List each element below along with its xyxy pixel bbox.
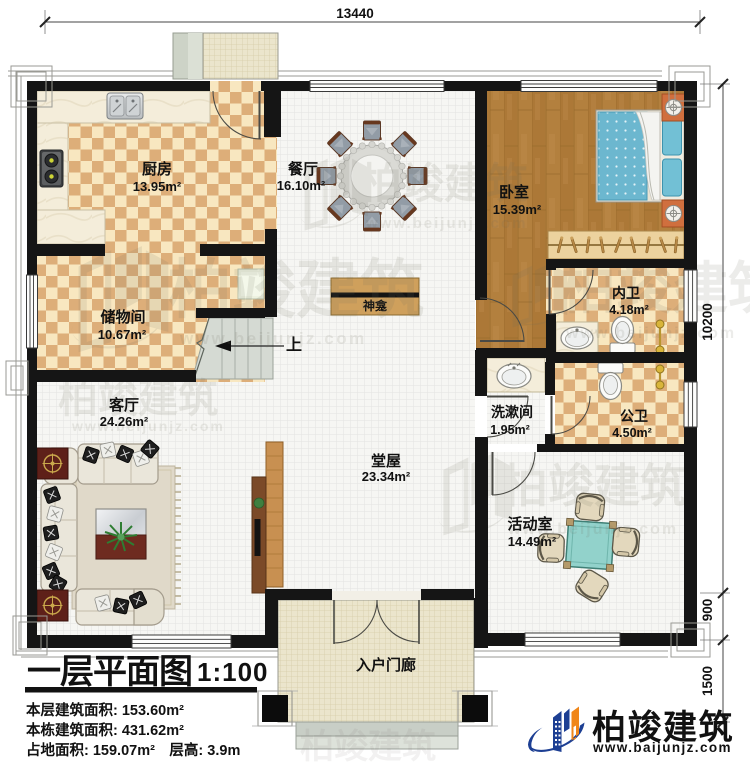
- svg-text:柏竣建筑: 柏竣建筑: [502, 460, 686, 512]
- svg-text:24.26m²: 24.26m²: [100, 414, 149, 429]
- svg-text:本层建筑面积: 153.60m²: 本层建筑面积: 153.60m²: [26, 701, 184, 719]
- svg-text:上: 上: [286, 336, 302, 354]
- svg-text:厨房: 厨房: [142, 160, 172, 178]
- svg-text:洗漱间: 洗漱间: [491, 404, 533, 420]
- svg-text:堂屋: 堂屋: [371, 452, 401, 470]
- svg-text:入户门廊: 入户门廊: [356, 656, 416, 674]
- svg-text:1.95m²: 1.95m²: [490, 423, 530, 437]
- svg-text:15.39m²: 15.39m²: [493, 202, 542, 217]
- svg-text:4.18m²: 4.18m²: [609, 303, 649, 317]
- svg-text:23.34m²: 23.34m²: [362, 469, 411, 484]
- svg-text:客厅: 客厅: [108, 396, 139, 414]
- svg-text:www.baijunjz.com: www.baijunjz.com: [592, 740, 732, 755]
- svg-text:10200: 10200: [700, 303, 715, 341]
- svg-text:公卫: 公卫: [620, 408, 648, 424]
- svg-text:占地面积: 159.07m² 层高: 3.9m: 占地面积: 159.07m² 层高: 3.9m: [26, 741, 240, 759]
- svg-text:本栋建筑面积: 431.62m²: 本栋建筑面积: 431.62m²: [26, 721, 184, 739]
- svg-text:餐厅: 餐厅: [288, 160, 318, 178]
- svg-text:柏竣建筑: 柏竣建筑: [300, 727, 436, 766]
- svg-text:1:100: 1:100: [197, 657, 269, 687]
- svg-text:www.beijunjz.com: www.beijunjz.com: [179, 329, 367, 348]
- svg-text:14.49m²: 14.49m²: [508, 534, 557, 549]
- svg-text:www.beijunjz.com: www.beijunjz.com: [365, 215, 527, 232]
- svg-text:卧室: 卧室: [499, 183, 529, 201]
- svg-text:16.10m²: 16.10m²: [277, 178, 326, 193]
- svg-text:4.50m²: 4.50m²: [612, 426, 652, 440]
- svg-text:10.67m²: 10.67m²: [98, 327, 147, 342]
- svg-text:储物间: 储物间: [100, 308, 145, 326]
- svg-text:13.95m²: 13.95m²: [133, 179, 182, 194]
- svg-text:内卫: 内卫: [612, 285, 640, 301]
- svg-text:1500: 1500: [700, 666, 715, 696]
- svg-text:900: 900: [700, 599, 715, 622]
- svg-text:13440: 13440: [336, 6, 374, 21]
- svg-text:活动室: 活动室: [507, 515, 552, 533]
- svg-text:一层平面图: 一层平面图: [27, 653, 192, 691]
